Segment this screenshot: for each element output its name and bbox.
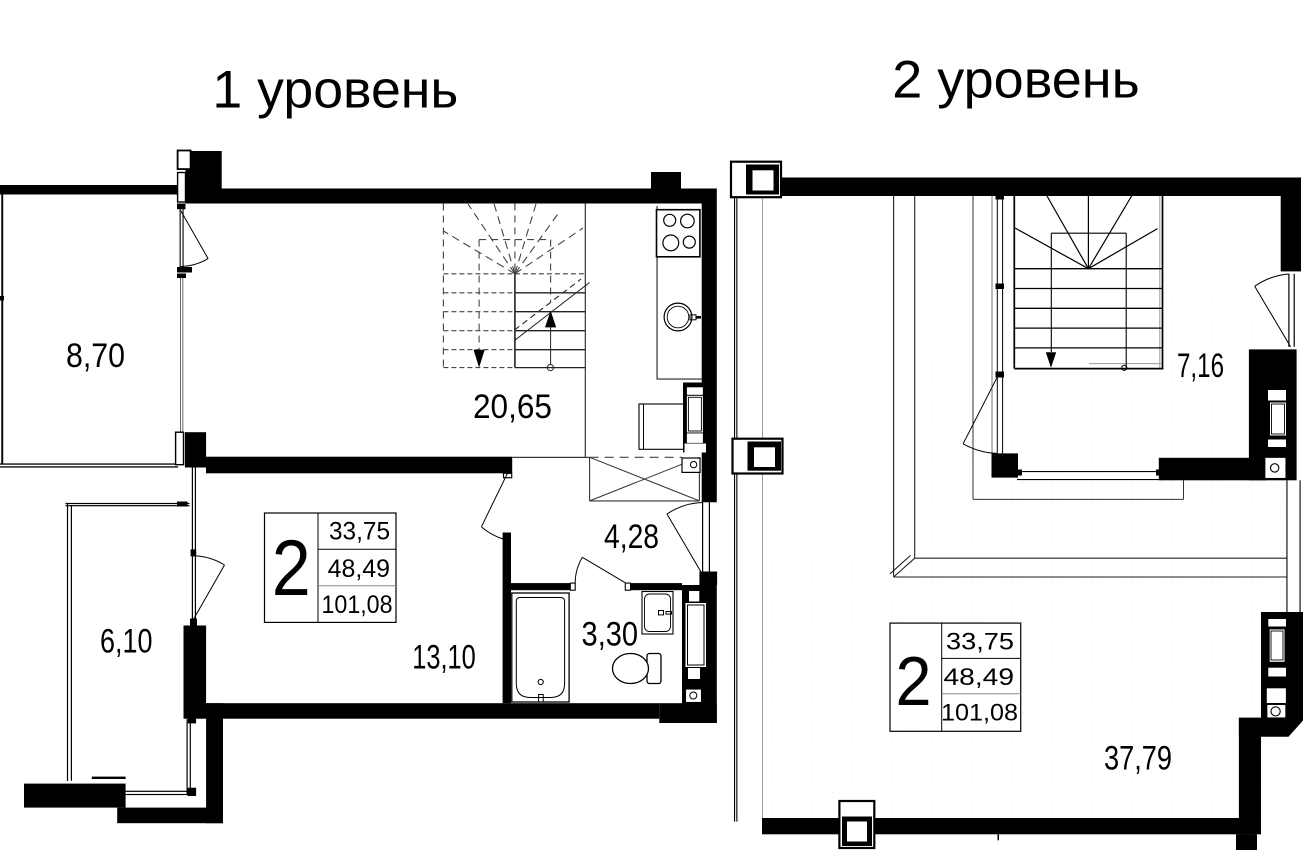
- svg-text:20,65: 20,65: [473, 388, 552, 426]
- svg-text:33,75: 33,75: [946, 629, 1014, 656]
- svg-text:101,08: 101,08: [322, 591, 393, 619]
- svg-text:1 уровень: 1 уровень: [212, 61, 458, 120]
- svg-text:2: 2: [896, 642, 932, 720]
- svg-text:8,70: 8,70: [66, 337, 125, 375]
- svg-text:48,49: 48,49: [328, 555, 390, 583]
- svg-text:101,08: 101,08: [941, 700, 1018, 727]
- svg-text:33,75: 33,75: [329, 518, 390, 546]
- svg-text:3,30: 3,30: [582, 615, 639, 653]
- svg-text:6,10: 6,10: [100, 622, 153, 660]
- svg-text:2 уровень: 2 уровень: [892, 51, 1140, 110]
- svg-text:2: 2: [272, 523, 311, 612]
- svg-text:4,28: 4,28: [604, 518, 659, 556]
- svg-text:48,49: 48,49: [944, 664, 1015, 691]
- svg-text:7,16: 7,16: [1177, 347, 1224, 385]
- svg-text:37,79: 37,79: [1104, 740, 1172, 778]
- svg-text:13,10: 13,10: [412, 639, 476, 677]
